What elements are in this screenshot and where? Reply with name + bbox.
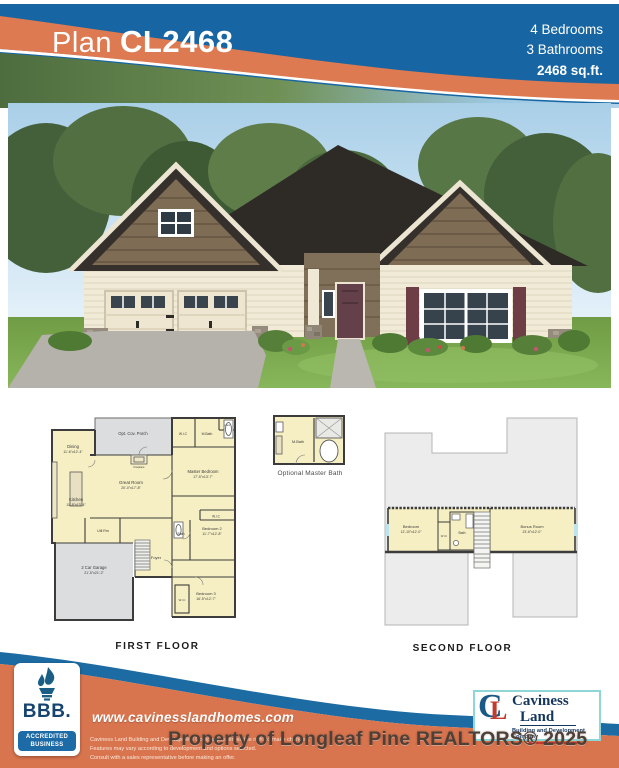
room-label-util: Util Rm: [97, 529, 109, 533]
bbb-accredited-badge: BBB. ACCREDITED BUSINESS: [14, 663, 80, 756]
website-url: www.cavinesslandhomes.com: [92, 710, 294, 725]
bbb-business-text: BUSINESS: [18, 742, 76, 750]
plan-stats: 4 Bedrooms 3 Bathrooms 2468 sq.ft.: [526, 20, 603, 81]
sidelight-window: [323, 291, 334, 317]
house-illustration: [8, 103, 611, 388]
room-label-bath-2f: Bath: [459, 531, 466, 535]
bbb-torch-icon: [30, 666, 64, 702]
flyer-page: PlanCL2468 4 Bedrooms 3 Bathrooms 2468 s…: [0, 0, 619, 768]
sqft-value: 2468 sq.ft.: [526, 61, 603, 81]
room-label-master: Master Bedroom: [188, 469, 219, 474]
room-label-bedroom4: Bedroom: [403, 524, 420, 529]
first-floor-plan: Opt. Cov. Porch Dining 11'-6"x12'-4" Fir…: [43, 410, 258, 640]
left-shutter: [406, 287, 419, 345]
room-label-kitchen: Kitchen: [69, 497, 84, 502]
room-dims-great: 20'-0"x17'-8": [121, 486, 141, 490]
optional-bath-caption: Optional Master Bath: [252, 470, 368, 477]
room-label-fireplace: Fireplace: [133, 465, 145, 469]
room-label-linen: Linen: [224, 423, 231, 427]
room-label-wic1: W.I.C: [179, 432, 188, 436]
room-label-great: Great Room: [119, 480, 143, 485]
room-label-bonus: Bonus Room: [520, 524, 544, 529]
watermark-text: Property of Longleaf Pine REALTORS® 2025: [168, 728, 619, 751]
caviness-name-1: Caviness: [512, 694, 596, 708]
driveway: [8, 331, 266, 388]
room-label-dining: Dining: [67, 444, 80, 449]
second-floor-plan: Bedroom 12'-10"x12'-0" W.I.C Bath Bonus …: [382, 412, 582, 632]
bedrooms-count: 4 Bedrooms: [526, 20, 603, 40]
optional-bath-label: M.Bath: [292, 440, 304, 444]
room-label-foyer: Foyer: [151, 555, 162, 560]
disclaimer-line: Consult with a sales representative befo…: [90, 754, 352, 763]
room-label-bath: Bath: [178, 532, 185, 536]
room-dims-bedroom3: 16'-5"x12'-7": [196, 597, 216, 601]
room-label-wic2: W.I.C: [212, 515, 220, 519]
page-title: PlanCL2468: [52, 24, 233, 60]
bbb-accredited-bar: ACCREDITED BUSINESS: [18, 731, 76, 751]
porch-column: [308, 269, 319, 325]
room-label-mbath: M.Bath: [202, 432, 213, 436]
room-dims-bonus: 23'-6"x12'-0": [523, 530, 543, 534]
entry-porch: [304, 253, 380, 339]
optional-bath-plan: M.Bath: [268, 412, 350, 468]
room-label-garage: 2 Car Garage: [81, 565, 107, 570]
bathrooms-count: 3 Bathrooms: [526, 40, 603, 60]
room-label-wic3: W.I.C: [179, 598, 186, 602]
bbb-accredited-text: ACCREDITED: [18, 734, 76, 742]
room-label-wic-2f: W.I.C: [441, 534, 447, 538]
plan-code: CL2468: [120, 24, 233, 59]
room-dims-garage: 21'-5"x21'-2": [84, 571, 104, 575]
caviness-name-2: Land: [520, 710, 576, 725]
house-rendering: [8, 103, 611, 388]
room-label-bedroom3: Bedroom 3: [196, 591, 216, 596]
bbb-label: BBB.: [14, 702, 80, 721]
header-banner: PlanCL2468 4 Bedrooms 3 Bathrooms 2468 s…: [0, 0, 619, 108]
room-dims-master: 17'-5"x13'-7": [193, 475, 213, 479]
room-dims-dining: 11'-6"x12'-4": [63, 450, 83, 454]
room-dims-bedroom4: 12'-10"x12'-0": [401, 530, 423, 534]
room-dims-bedroom2: 11'-7"x12'-8": [202, 532, 222, 536]
room-label-porch: Opt. Cov. Porch: [118, 431, 148, 436]
room-label-bedroom2: Bedroom 2: [202, 526, 222, 531]
room-dims-kitchen: 11'-8"x13'-4": [66, 503, 86, 507]
front-window: [406, 287, 526, 345]
plan-word: Plan: [52, 27, 112, 59]
footer-banner: BBB. ACCREDITED BUSINESS www.cavinesslan…: [0, 650, 619, 768]
